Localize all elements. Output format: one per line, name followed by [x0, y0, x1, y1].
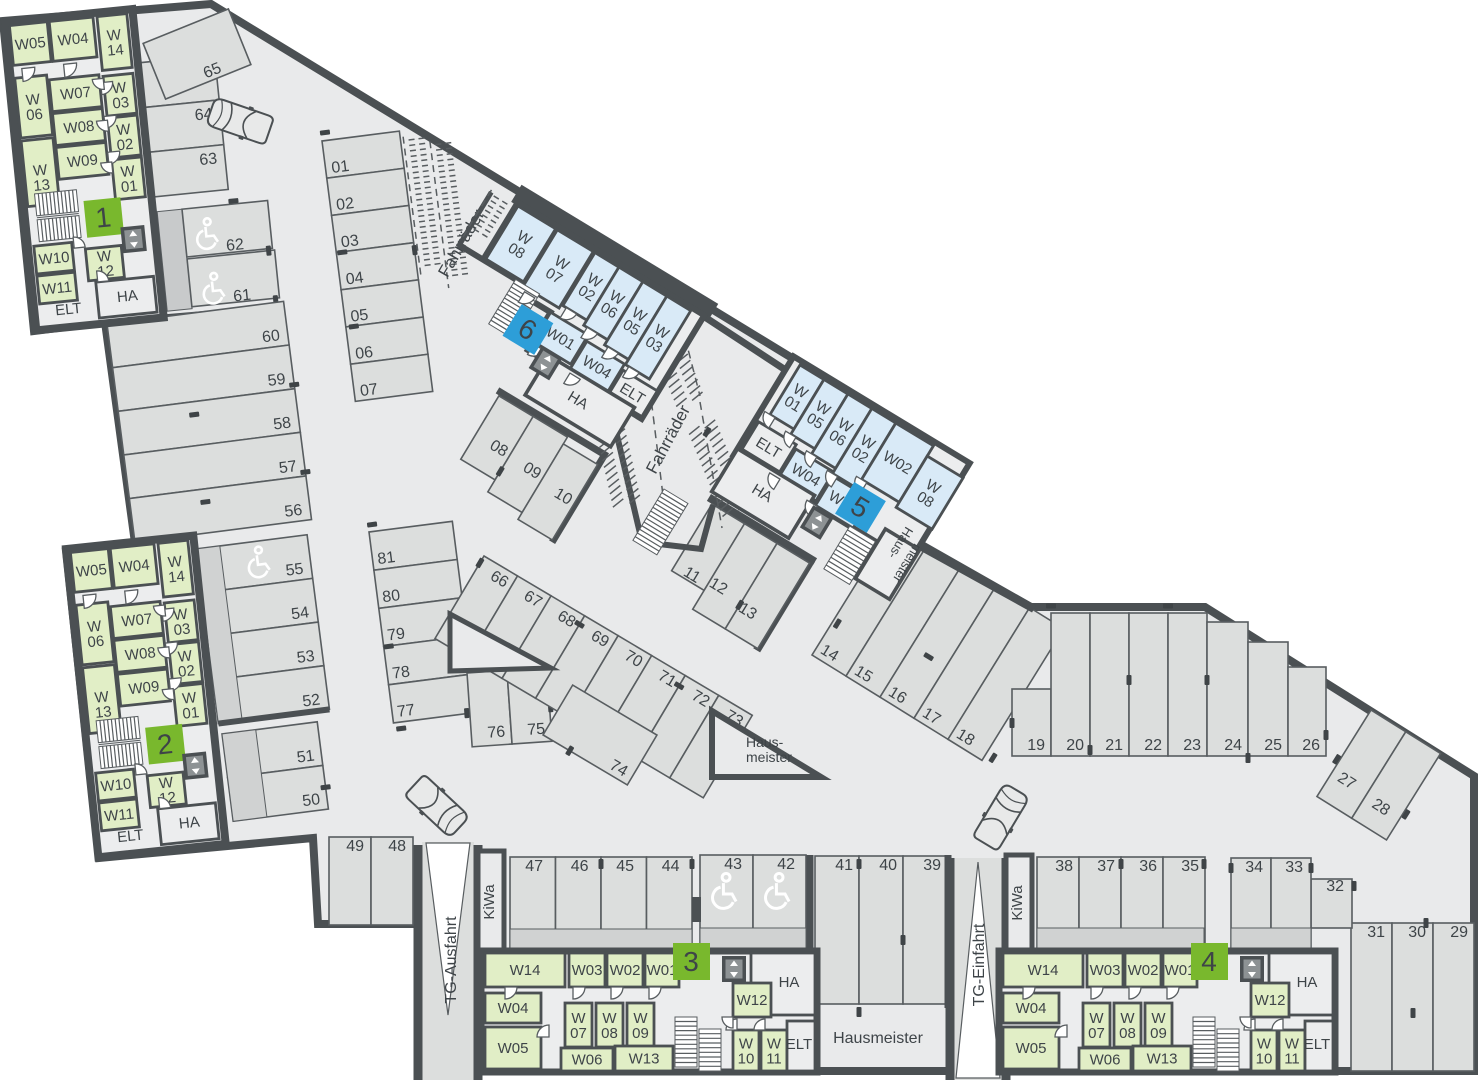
svg-text:11: 11 [1284, 1051, 1300, 1068]
svg-text:46: 46 [571, 858, 589, 875]
svg-text:ELT: ELT [1304, 1036, 1330, 1053]
svg-text:24: 24 [1224, 737, 1242, 754]
svg-text:41: 41 [835, 857, 853, 874]
svg-text:HA: HA [178, 814, 201, 833]
svg-text:W03: W03 [1090, 962, 1121, 979]
svg-text:W09: W09 [128, 678, 160, 698]
svg-text:34: 34 [1245, 859, 1263, 876]
svg-text:33: 33 [1285, 859, 1303, 876]
svg-text:37: 37 [1097, 858, 1115, 875]
svg-text:35: 35 [1181, 858, 1199, 875]
svg-text:W10: W10 [38, 249, 70, 269]
svg-text:11: 11 [766, 1051, 782, 1068]
svg-text:09: 09 [632, 1025, 649, 1042]
svg-text:W02: W02 [1128, 962, 1159, 979]
svg-text:meister: meister [746, 749, 792, 765]
svg-text:06: 06 [354, 344, 374, 363]
svg-text:29: 29 [1450, 924, 1468, 941]
svg-text:08: 08 [1119, 1025, 1136, 1042]
svg-text:19: 19 [1027, 737, 1045, 754]
svg-text:W05: W05 [498, 1040, 529, 1057]
svg-text:03: 03 [340, 232, 360, 251]
svg-text:22: 22 [1144, 737, 1162, 754]
svg-text:W10: W10 [100, 776, 132, 796]
svg-text:01: 01 [120, 177, 138, 196]
svg-text:Hausmeister: Hausmeister [833, 1030, 923, 1047]
svg-text:3: 3 [683, 946, 699, 977]
svg-text:07: 07 [359, 381, 379, 400]
svg-text:W14: W14 [510, 962, 541, 979]
svg-text:48: 48 [388, 838, 406, 855]
svg-text:W11: W11 [42, 279, 73, 299]
svg-text:W11: W11 [103, 805, 134, 825]
svg-text:63: 63 [199, 150, 219, 169]
svg-text:76: 76 [487, 723, 506, 741]
svg-text:57: 57 [278, 458, 298, 477]
svg-text:30: 30 [1408, 924, 1426, 941]
svg-text:21: 21 [1105, 737, 1123, 754]
svg-text:54: 54 [290, 604, 310, 623]
svg-text:W03: W03 [572, 962, 603, 979]
svg-text:2: 2 [156, 728, 175, 760]
svg-text:W05: W05 [75, 561, 107, 581]
svg-text:75: 75 [527, 721, 546, 739]
svg-text:53: 53 [296, 648, 316, 667]
svg-text:W12: W12 [1255, 992, 1286, 1009]
svg-text:47: 47 [525, 858, 543, 875]
svg-text:TG-Ausfahrt: TG-Ausfahrt [443, 916, 460, 1004]
svg-text:79: 79 [386, 625, 406, 644]
svg-text:W07: W07 [59, 84, 91, 104]
svg-text:61: 61 [232, 287, 252, 306]
svg-text:W01: W01 [647, 962, 678, 979]
svg-text:W07: W07 [121, 610, 153, 630]
svg-text:1: 1 [94, 201, 113, 233]
svg-text:42: 42 [777, 856, 795, 873]
svg-text:39: 39 [923, 857, 941, 874]
svg-text:80: 80 [381, 587, 401, 606]
svg-text:03: 03 [112, 94, 130, 113]
svg-text:51: 51 [296, 747, 316, 766]
svg-text:01: 01 [182, 704, 200, 723]
svg-text:04: 04 [345, 269, 365, 288]
svg-text:HA: HA [1297, 974, 1318, 991]
svg-text:W04: W04 [498, 1000, 529, 1017]
svg-text:ELT: ELT [786, 1036, 812, 1053]
svg-text:HA: HA [779, 974, 800, 991]
svg-text:W08: W08 [63, 118, 95, 138]
svg-text:05: 05 [350, 307, 370, 326]
svg-text:25: 25 [1264, 737, 1282, 754]
svg-text:10: 10 [738, 1051, 755, 1068]
svg-text:59: 59 [267, 371, 287, 390]
svg-text:TG-Einfahrt: TG-Einfahrt [971, 923, 988, 1006]
svg-text:KiWa: KiWa [481, 884, 498, 920]
svg-text:32: 32 [1326, 878, 1344, 895]
svg-text:4: 4 [1201, 946, 1217, 977]
svg-text:HA: HA [116, 287, 138, 306]
svg-text:36: 36 [1139, 858, 1157, 875]
svg-text:03: 03 [173, 620, 191, 639]
svg-text:07: 07 [1088, 1025, 1105, 1042]
svg-text:Haus-: Haus- [746, 734, 784, 750]
svg-text:W04: W04 [57, 30, 89, 50]
svg-text:W14: W14 [1028, 962, 1059, 979]
svg-text:31: 31 [1367, 924, 1385, 941]
svg-text:ELT: ELT [116, 827, 144, 847]
svg-text:14: 14 [167, 568, 185, 587]
svg-text:60: 60 [261, 327, 281, 346]
svg-text:62: 62 [225, 236, 245, 255]
svg-text:W05: W05 [14, 34, 46, 54]
svg-text:20: 20 [1066, 737, 1084, 754]
svg-text:W05: W05 [1016, 1040, 1047, 1057]
svg-text:W04: W04 [1016, 1000, 1047, 1017]
svg-text:45: 45 [616, 858, 634, 875]
svg-text:W04: W04 [118, 556, 150, 576]
svg-text:14: 14 [106, 41, 124, 60]
svg-text:55: 55 [285, 561, 305, 580]
svg-text:49: 49 [346, 838, 364, 855]
svg-text:09: 09 [1150, 1025, 1167, 1042]
svg-text:10: 10 [1256, 1051, 1273, 1068]
svg-text:78: 78 [391, 663, 411, 682]
svg-text:W09: W09 [66, 151, 98, 171]
svg-text:ELT: ELT [54, 300, 82, 320]
svg-text:W12: W12 [737, 992, 768, 1009]
svg-text:44: 44 [662, 858, 680, 875]
svg-text:06: 06 [87, 633, 105, 652]
svg-text:W13: W13 [629, 1051, 660, 1068]
svg-text:43: 43 [724, 856, 742, 873]
svg-text:58: 58 [272, 414, 292, 433]
svg-text:56: 56 [284, 502, 304, 521]
svg-text:77: 77 [396, 702, 416, 721]
svg-text:08: 08 [601, 1025, 618, 1042]
svg-text:W06: W06 [1090, 1052, 1121, 1069]
svg-text:W02: W02 [610, 962, 641, 979]
svg-text:W06: W06 [572, 1052, 603, 1069]
svg-text:07: 07 [570, 1025, 587, 1042]
svg-text:KiWa: KiWa [1009, 885, 1026, 921]
svg-text:81: 81 [377, 549, 397, 568]
svg-text:01: 01 [330, 158, 350, 177]
svg-text:26: 26 [1302, 737, 1320, 754]
svg-text:06: 06 [25, 106, 43, 125]
svg-text:40: 40 [879, 857, 897, 874]
svg-text:W13: W13 [1147, 1051, 1178, 1068]
svg-text:50: 50 [301, 791, 321, 810]
svg-text:38: 38 [1055, 858, 1073, 875]
svg-text:23: 23 [1183, 737, 1201, 754]
svg-text:W08: W08 [124, 644, 156, 664]
svg-text:W01: W01 [1165, 962, 1196, 979]
svg-text:02: 02 [335, 195, 355, 214]
